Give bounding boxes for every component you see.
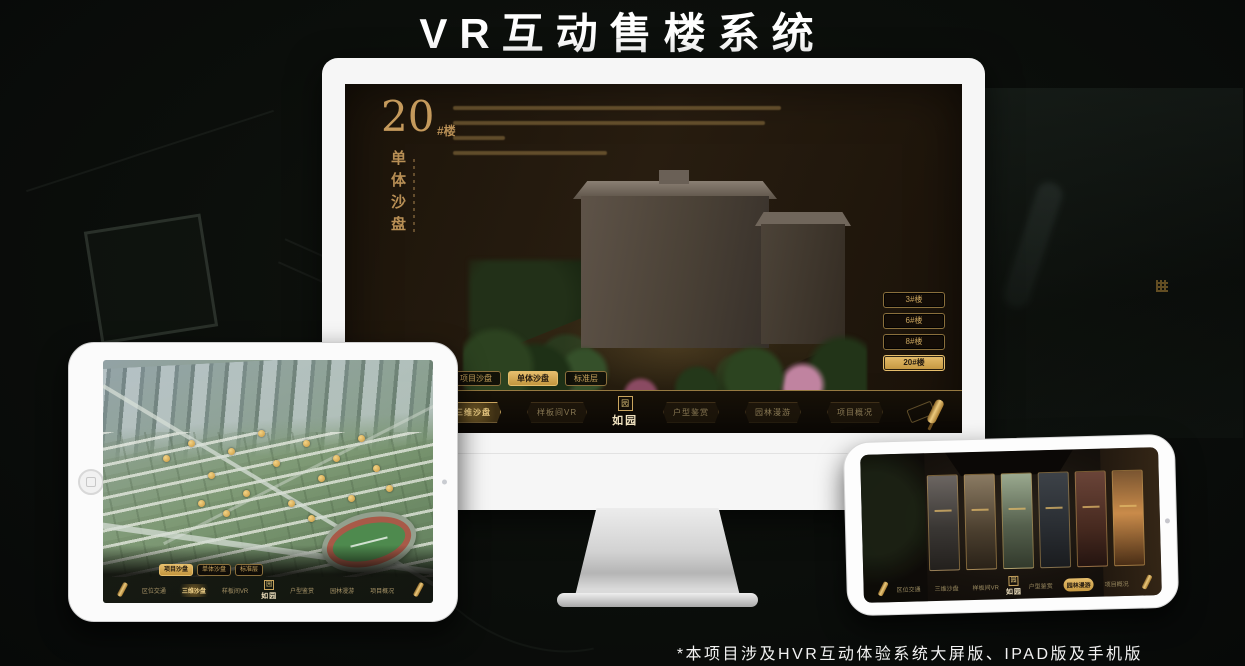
monitor-stand-base (557, 593, 758, 607)
building-badge-icon[interactable] (358, 435, 365, 442)
floor-button[interactable]: 8#楼 (883, 334, 945, 350)
sub-tab[interactable]: 标准层 (565, 371, 607, 386)
brand-logo: 园 如园 (261, 580, 277, 601)
page-title: VR互动售楼系统 (0, 0, 1245, 61)
monitor-stand-neck (575, 508, 740, 596)
tablet-camera-icon (442, 480, 447, 485)
nav-item[interactable]: 区位交通 (893, 582, 923, 596)
building-badge-icon[interactable] (228, 448, 235, 455)
nav-item[interactable]: 样板间VR (969, 580, 1002, 594)
scroll-icon[interactable] (407, 582, 425, 598)
panorama-card[interactable] (1112, 470, 1146, 567)
nav-item[interactable]: 项目概况 (366, 584, 398, 597)
building-badge-icon[interactable] (333, 455, 340, 462)
panorama-card-list (927, 470, 1145, 572)
phone-nav-left: 区位交通三维沙盘样板间VR (893, 580, 1002, 596)
building-badge-icon[interactable] (243, 490, 250, 497)
panorama-card[interactable] (1075, 471, 1109, 568)
tablet-sub-tabs: 项目沙盘单体沙盘标准层 (159, 564, 263, 576)
building-badge-icon[interactable] (308, 515, 315, 522)
floor-button[interactable]: 6#楼 (883, 313, 945, 329)
phone-device: 区位交通三维沙盘样板间VR 园 如园 户型鉴赏园林漫游项目概况 (843, 434, 1179, 617)
building-badge-icon[interactable] (288, 500, 295, 507)
phone-screen: 区位交通三维沙盘样板间VR 园 如园 户型鉴赏园林漫游项目概况 (860, 447, 1162, 603)
sub-tab[interactable]: 单体沙盘 (508, 371, 558, 386)
description-text-blurred (453, 106, 781, 166)
floor-button[interactable]: 20#楼 (883, 355, 945, 371)
building-badge-icon[interactable] (303, 440, 310, 447)
background-building-icon (1156, 280, 1168, 292)
hero-english-ticks (413, 156, 415, 232)
building-badge-icon[interactable] (318, 475, 325, 482)
nav-item[interactable]: 样板间VR (527, 402, 587, 423)
phone-nav-right: 户型鉴赏园林漫游项目概况 (1025, 576, 1131, 592)
nav-item[interactable]: 样板间VR (218, 584, 252, 597)
building-badge-icon[interactable] (163, 455, 170, 462)
nav-item[interactable]: 三维沙盘 (931, 581, 961, 595)
scroll-icon[interactable] (871, 581, 889, 597)
background-road-line (26, 110, 274, 192)
nav-item[interactable]: 户型鉴赏 (663, 402, 719, 423)
tablet-nav-left: 区位交通三维沙盘样板间VR (138, 584, 252, 597)
logo-seal: 园 (264, 580, 274, 590)
brand-logo: 园 如园 (612, 396, 638, 428)
panorama-card[interactable] (964, 473, 998, 570)
footnote-text: *本项目涉及HVR互动体验系统大屏版、IPAD版及手机版 (677, 640, 1143, 664)
nav-item[interactable]: 项目概况 (1101, 576, 1131, 590)
scroll-icon[interactable] (111, 582, 129, 598)
home-button[interactable] (78, 469, 104, 495)
tablet-nav-right: 户型鉴赏园林漫游项目概况 (286, 584, 398, 597)
building-badge-icon[interactable] (273, 460, 280, 467)
nav-item[interactable]: 园林漫游 (1063, 577, 1093, 591)
building-3d-render (463, 168, 867, 426)
building-badge-icon[interactable] (188, 440, 195, 447)
building-badge-icon[interactable] (223, 510, 230, 517)
background-sign-frame (84, 213, 218, 344)
panorama-card[interactable] (927, 474, 961, 571)
hero-title-vertical: 单体沙盘 (387, 150, 408, 238)
logo-name: 如园 (261, 591, 277, 601)
building-badge-icon[interactable] (386, 485, 393, 492)
sub-tab[interactable]: 单体沙盘 (197, 564, 231, 576)
logo-name: 如园 (1006, 586, 1022, 596)
building-roof-top (659, 170, 689, 184)
logo-seal: 园 (1008, 575, 1018, 585)
building-badge-icon[interactable] (198, 500, 205, 507)
nav-item[interactable]: 园林漫游 (745, 402, 801, 423)
sub-tab[interactable]: 项目沙盘 (451, 371, 501, 386)
nav-item[interactable]: 区位交通 (138, 584, 170, 597)
sub-tab[interactable]: 标准层 (235, 564, 263, 576)
panorama-card[interactable] (1038, 471, 1072, 568)
scroll-icon[interactable] (908, 400, 944, 424)
phone-camera-icon (1165, 518, 1170, 523)
nav-item[interactable]: 项目概况 (827, 402, 883, 423)
nav-item[interactable]: 三维沙盘 (178, 584, 210, 597)
floor-button-list: 3#楼6#楼8#楼20#楼 (883, 292, 945, 376)
building-number: 20 (381, 96, 434, 138)
poster-stage: VR互动售楼系统 20 #楼 单体沙盘 3#楼6#楼8#楼20#楼 项目沙盘单体… (0, 0, 1245, 666)
logo-seal: 园 (618, 396, 633, 411)
nav-item[interactable]: 户型鉴赏 (286, 584, 318, 597)
nav-item[interactable]: 园林漫游 (326, 584, 358, 597)
sub-tab[interactable]: 项目沙盘 (159, 564, 193, 576)
scroll-icon[interactable] (1135, 574, 1153, 590)
desktop-nav-right: 户型鉴赏园林漫游项目概况 (663, 402, 883, 423)
logo-name: 如园 (612, 412, 638, 428)
brand-logo: 园 如园 (1005, 575, 1022, 596)
tablet-navbar: 区位交通三维沙盘样板间VR 园 如园 户型鉴赏园林漫游项目概况 (111, 580, 425, 600)
tablet-screen: 项目沙盘单体沙盘标准层 区位交通三维沙盘样板间VR 园 如园 户型鉴赏园林漫游项… (103, 360, 433, 603)
panorama-card[interactable] (1001, 472, 1035, 569)
tablet-device: 项目沙盘单体沙盘标准层 区位交通三维沙盘样板间VR 园 如园 户型鉴赏园林漫游项… (68, 342, 458, 622)
building-badge-icon[interactable] (348, 495, 355, 502)
building-badge-icon[interactable] (208, 472, 215, 479)
building-badge-icon[interactable] (373, 465, 380, 472)
nav-item[interactable]: 户型鉴赏 (1025, 578, 1055, 592)
floor-button[interactable]: 3#楼 (883, 292, 945, 308)
desktop-sub-tabs: 项目沙盘单体沙盘标准层 (451, 371, 607, 386)
building-badge-icon[interactable] (258, 430, 265, 437)
